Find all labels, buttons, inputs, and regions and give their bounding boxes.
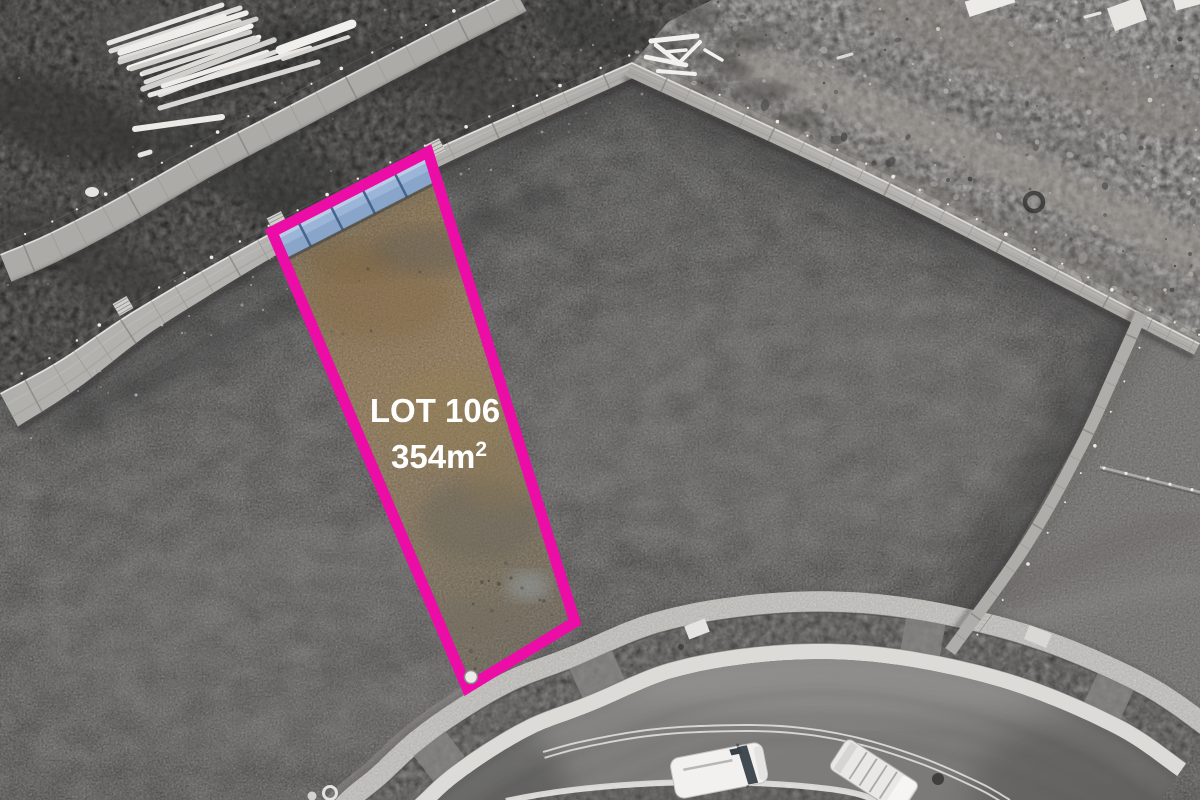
svg-text:LOT 106: LOT 106	[370, 392, 500, 429]
svg-text:354m2: 354m2	[391, 438, 487, 475]
